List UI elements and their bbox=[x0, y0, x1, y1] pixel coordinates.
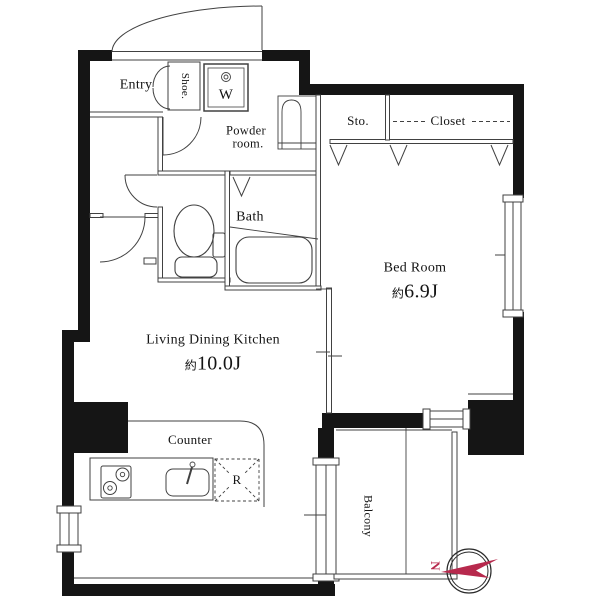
room-label-storage: Sto. bbox=[347, 114, 369, 128]
room-label-closet: Closet bbox=[430, 114, 465, 128]
kitchen-left-window bbox=[57, 506, 81, 552]
bedroom-right-window bbox=[495, 195, 523, 317]
ldk-balcony-door bbox=[304, 458, 339, 581]
room-label-entry: Entry bbox=[120, 79, 153, 94]
ldk-size-prefix: 約 bbox=[185, 359, 197, 373]
balcony-outline bbox=[334, 428, 457, 579]
room-label-washer: W bbox=[219, 88, 233, 104]
floor-lines bbox=[74, 112, 513, 578]
sink bbox=[166, 462, 209, 496]
room-label-bedroom: Bed Room bbox=[384, 262, 447, 277]
bedroom-size-value: 6.9J bbox=[404, 281, 438, 303]
ldk-door bbox=[100, 217, 145, 262]
toilet-door bbox=[125, 175, 157, 207]
entry-door bbox=[112, 6, 262, 60]
room-label-powder-line2: room. bbox=[232, 137, 263, 150]
bedroom-size-prefix: 約 bbox=[392, 287, 404, 301]
room-label-bath: Bath bbox=[236, 211, 264, 226]
ldk-size-value: 10.0J bbox=[197, 353, 241, 375]
washbasin bbox=[278, 96, 316, 149]
bedroom-balcony-window bbox=[423, 409, 470, 429]
room-label-ldk: Living Dining Kitchen bbox=[146, 334, 280, 349]
compass-north-label: N bbox=[428, 561, 442, 571]
toilet bbox=[174, 205, 225, 277]
shoe-closet-doors bbox=[153, 62, 200, 110]
room-size-bedroom: 約6.9J bbox=[392, 282, 438, 303]
room-label-shoe-closet: Shoe. bbox=[178, 73, 190, 99]
bathtub bbox=[230, 227, 318, 283]
label-refrigerator: R bbox=[233, 473, 242, 487]
room-size-ldk: 約10.0J bbox=[185, 354, 242, 375]
label-counter: Counter bbox=[168, 433, 212, 447]
powder-room-door bbox=[163, 117, 201, 155]
room-label-balcony: Balcony bbox=[362, 495, 375, 537]
stove bbox=[101, 466, 131, 498]
floorplan-drawing bbox=[0, 0, 600, 600]
compass-north-icon bbox=[441, 549, 498, 593]
floorplan: Entry Shoe. W Powder room. Sto. Closet B… bbox=[0, 0, 600, 600]
